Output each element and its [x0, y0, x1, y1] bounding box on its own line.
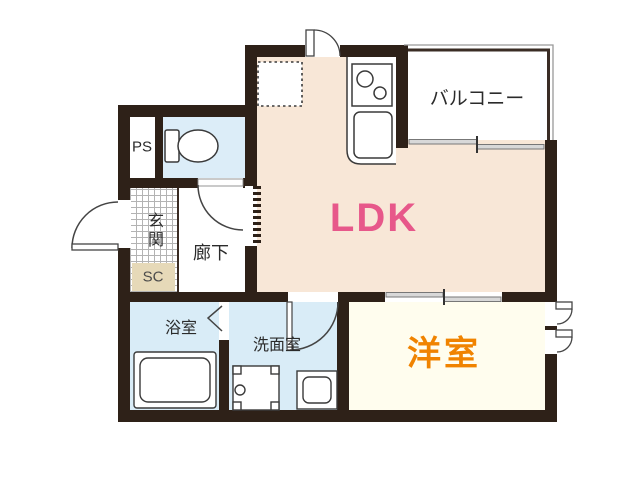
wall-topblock-top [118, 105, 257, 117]
label-ldk: LDK [330, 198, 418, 238]
window-opening-right-1 [545, 302, 557, 326]
bedroom-casement-windows [556, 302, 572, 352]
door-opening-bedroom-slide [385, 292, 502, 302]
floor-plan: LDK バルコニー 洋室 廊下 玄関 SC PS 浴室 洗面室 [0, 0, 640, 480]
door-opening-entrance [117, 200, 131, 248]
door-opening-toilet [198, 178, 243, 188]
wall-left [118, 105, 130, 422]
wall-bath-washroom [219, 340, 229, 410]
wall-ldk-left [245, 45, 257, 302]
label-western-room: 洋室 [407, 337, 481, 371]
wall-ps-divider [155, 117, 163, 178]
label-hallway: 廊下 [193, 244, 229, 262]
room-bathroom [130, 302, 219, 410]
room-toilet [163, 117, 245, 178]
label-entrance: 玄関 [145, 212, 161, 250]
window-opening-top [305, 45, 340, 57]
wall-entrance-divider [177, 188, 179, 292]
door-opening-hallway-ldk [245, 186, 257, 246]
entrance-door [72, 202, 118, 250]
wall-kitchen-balcony [396, 45, 408, 148]
label-bathroom: 浴室 [165, 321, 197, 337]
window-opening-right-2 [545, 330, 557, 354]
door-opening-washroom [288, 292, 338, 302]
label-pipe-space: PS [132, 140, 152, 155]
wall-washroom-western [337, 292, 349, 410]
wall-right [545, 140, 557, 422]
label-shoe-closet: SC [143, 270, 164, 285]
label-washroom: 洗面室 [253, 338, 301, 354]
room-hallway [179, 188, 245, 292]
label-balcony: バルコニー [430, 90, 525, 109]
wall-bottom [118, 410, 557, 422]
room-washroom [229, 302, 337, 410]
